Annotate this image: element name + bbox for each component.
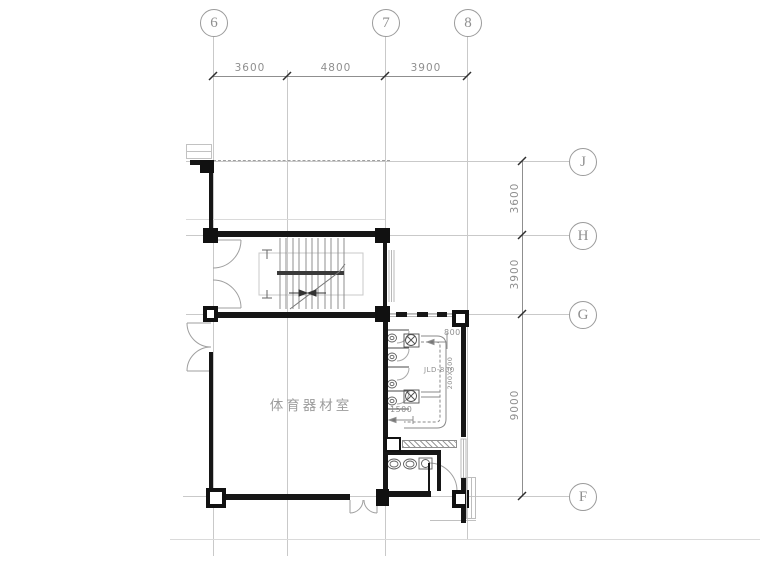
- column-J6: [200, 160, 214, 173]
- annotation-1500: 1500: [390, 405, 412, 414]
- room-label-sports-equipment: 体育器材室: [251, 394, 371, 414]
- toilet-east-window: [461, 439, 466, 478]
- grid-bubble-J: J: [569, 148, 597, 176]
- wall-south-toilet: [387, 491, 431, 497]
- column-H7: [375, 228, 390, 243]
- pipe-shaft: [385, 437, 401, 452]
- dimension-ticks: [209, 72, 526, 500]
- grid-bubble-8-label: 8: [464, 15, 472, 32]
- annotation-800: 800: [444, 328, 461, 337]
- column-G7: [375, 306, 390, 322]
- wall-stair-north: [211, 231, 388, 237]
- grid-bubble-8: 8: [454, 9, 482, 37]
- exterior-railing-centerline: [471, 477, 472, 519]
- wall-toilet-east-upper: [461, 327, 466, 437]
- hatched-ledge: [402, 440, 457, 448]
- dim-top-4800: 4800: [310, 62, 362, 74]
- floor-plan-canvas: 6 7 8 J H G F 3600 4800 3900 3600 3900 9…: [0, 0, 760, 570]
- wall-stair-east: [383, 243, 387, 308]
- wash-basins: [388, 458, 433, 469]
- column-G8: [452, 310, 469, 327]
- wall-main-east: [383, 318, 388, 494]
- grid-bubble-7: 7: [372, 9, 400, 37]
- grid-bubble-J-label: J: [580, 154, 586, 171]
- wall-north-toilet-seg1: [396, 312, 407, 317]
- grid-bubble-7-label: 7: [382, 15, 390, 32]
- supply-duct: [404, 336, 446, 428]
- stair-handrail: [277, 271, 344, 275]
- grid-bubble-H: H: [569, 222, 597, 250]
- wall-west-upper: [209, 166, 213, 229]
- dim-right-9000: 9000: [509, 379, 521, 431]
- dim-right-3600: 3600: [509, 172, 521, 224]
- wall-north-toilet-seg3: [437, 312, 447, 317]
- dim-top-3900: 3900: [400, 62, 452, 74]
- column-H6: [203, 228, 218, 243]
- wall-south-main: [226, 494, 350, 500]
- grid-bubble-G: G: [569, 301, 597, 329]
- grid-bubble-G-label: G: [578, 307, 589, 324]
- wall-grid-G: [211, 312, 388, 318]
- mop-basins: [404, 334, 419, 403]
- grid-bubble-6: 6: [200, 9, 228, 37]
- wall-west-main: [209, 352, 213, 490]
- grid-bubble-F-label: F: [579, 489, 587, 506]
- plan-linework: [0, 0, 760, 570]
- annotation-200x200: 200X200: [446, 353, 454, 393]
- dim-right-3900: 3900: [509, 248, 521, 300]
- grid-bubble-6-label: 6: [210, 15, 218, 32]
- toilet-entry-door-leaf: [428, 463, 430, 491]
- leader-1500: [389, 416, 413, 424]
- south-double-door: [350, 500, 377, 513]
- dim-top-3600: 3600: [224, 62, 276, 74]
- wall-north-toilet-seg2: [417, 312, 428, 317]
- column-G6: [203, 306, 218, 322]
- squat-toilets: [388, 334, 397, 405]
- wall-sink-east: [437, 455, 441, 491]
- grid-bubble-H-label: H: [578, 228, 589, 245]
- stair-section-marks: [262, 250, 272, 298]
- west-exterior-door: [187, 323, 211, 371]
- column-F7: [376, 489, 389, 506]
- column-F6: [206, 488, 226, 508]
- toilet-entry-door-swing: [429, 463, 457, 491]
- grid-bubble-F: F: [569, 483, 597, 511]
- stair-east-window: [389, 250, 394, 302]
- stair-double-door: [213, 240, 241, 308]
